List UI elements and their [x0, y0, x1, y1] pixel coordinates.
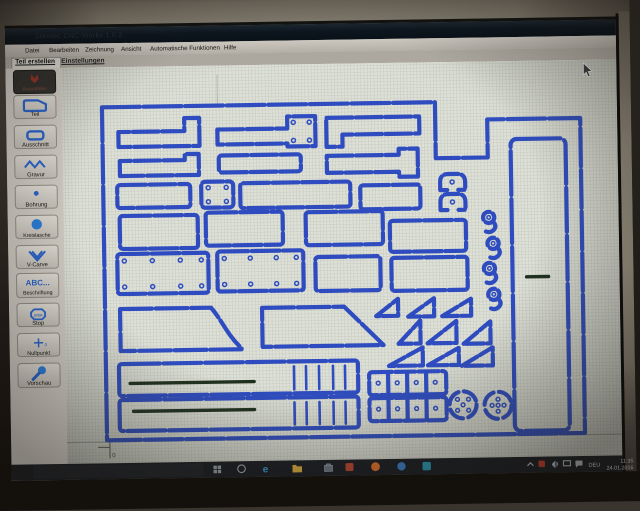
svg-text:e: e: [263, 464, 269, 475]
svg-text:ABC...: ABC...: [26, 278, 50, 287]
svg-text:DEU: DEU: [588, 463, 600, 469]
svg-text:V-Carve: V-Carve: [27, 262, 48, 268]
svg-text:Gravur: Gravur: [27, 172, 45, 178]
svg-text:Ausschnitt: Ausschnitt: [22, 142, 49, 148]
svg-text:Bohrung: Bohrung: [25, 202, 47, 208]
svg-text:Kreislasche: Kreislasche: [23, 233, 51, 239]
svg-text:Stop: Stop: [32, 321, 44, 327]
svg-text:Beschriftung: Beschriftung: [23, 290, 53, 296]
svg-text:11:35: 11:35: [620, 459, 633, 465]
svg-text:STOP: STOP: [34, 313, 44, 317]
svg-text:Vorschau: Vorschau: [27, 381, 51, 387]
svg-text:24.01.2016: 24.01.2016: [607, 465, 634, 471]
svg-text:Teil: Teil: [31, 112, 40, 118]
svg-text:Nullpunkt: Nullpunkt: [27, 351, 50, 357]
svg-text:Auswählen: Auswählen: [22, 86, 47, 92]
